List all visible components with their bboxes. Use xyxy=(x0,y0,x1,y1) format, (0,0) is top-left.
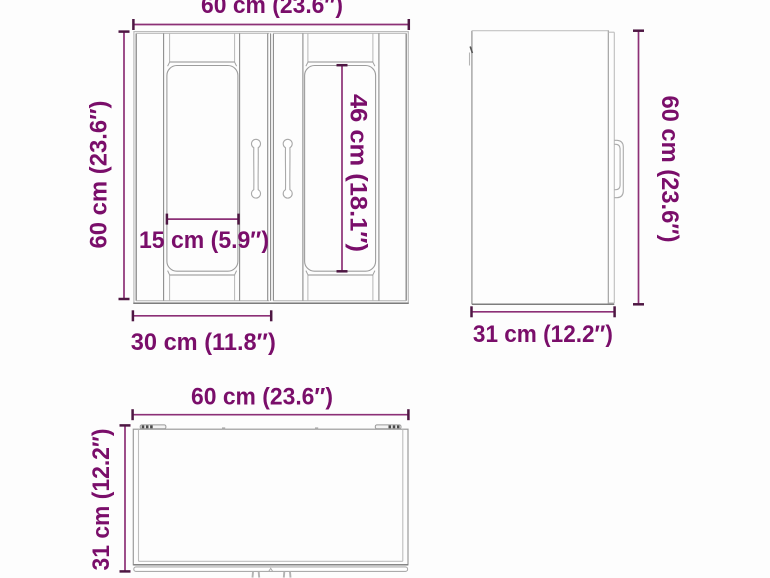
svg-text:60 cm (23.6″): 60 cm (23.6″) xyxy=(201,0,343,19)
svg-text:46 cm (18.1″): 46 cm (18.1″) xyxy=(345,94,372,252)
svg-text:60 cm (23.6″): 60 cm (23.6″) xyxy=(656,96,683,243)
svg-text:31 cm (12.2″): 31 cm (12.2″) xyxy=(88,429,115,571)
svg-text:15 cm (5.9″): 15 cm (5.9″) xyxy=(139,227,269,254)
svg-text:30 cm (11.8″): 30 cm (11.8″) xyxy=(131,329,276,356)
svg-text:60 cm (23.6″): 60 cm (23.6″) xyxy=(86,101,113,249)
svg-text:31 cm (12.2″): 31 cm (12.2″) xyxy=(473,321,613,348)
svg-text:60 cm (23.6″): 60 cm (23.6″) xyxy=(191,384,333,411)
